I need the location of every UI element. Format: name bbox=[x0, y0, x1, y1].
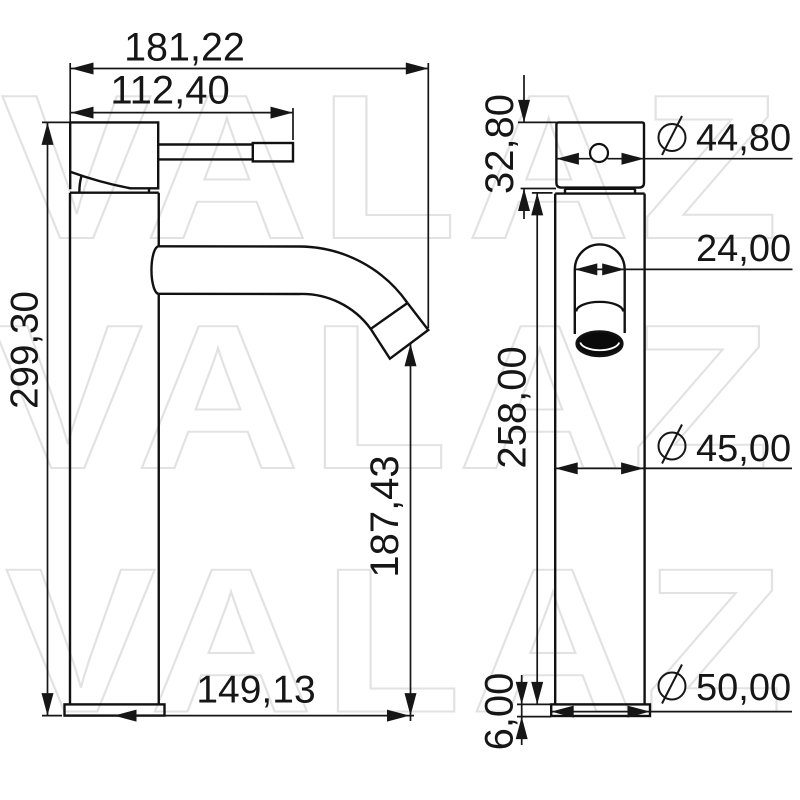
svg-text:50,00: 50,00 bbox=[696, 667, 791, 709]
svg-text:45,00: 45,00 bbox=[696, 428, 791, 470]
svg-text:149,13: 149,13 bbox=[196, 669, 315, 712]
svg-text:187,43: 187,43 bbox=[363, 455, 407, 577]
svg-text:6,00: 6,00 bbox=[478, 673, 522, 751]
svg-text:24,00: 24,00 bbox=[696, 228, 791, 270]
svg-text:44,80: 44,80 bbox=[696, 118, 791, 160]
svg-text:112,40: 112,40 bbox=[110, 69, 229, 113]
svg-text:258,00: 258,00 bbox=[491, 346, 535, 468]
svg-text:32,80: 32,80 bbox=[478, 94, 522, 194]
svg-text:181,22: 181,22 bbox=[124, 25, 245, 69]
svg-text:299,30: 299,30 bbox=[4, 291, 47, 409]
